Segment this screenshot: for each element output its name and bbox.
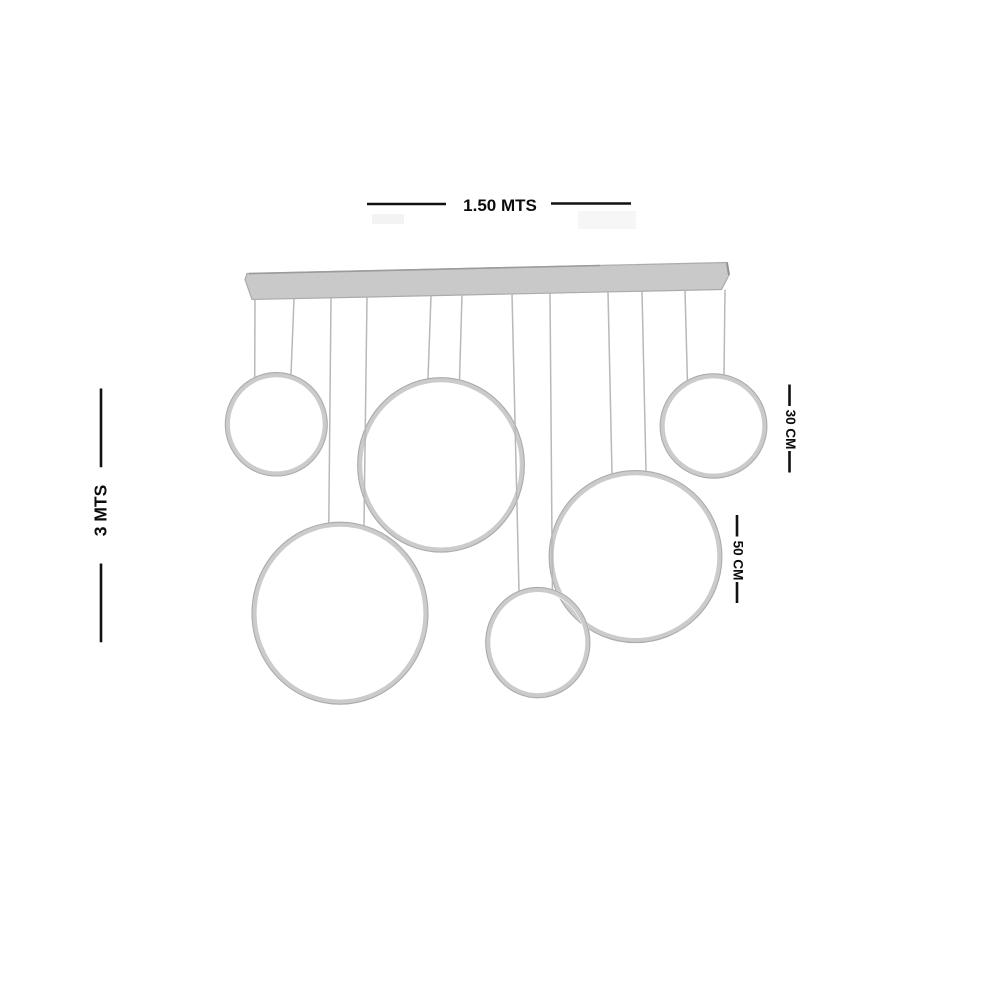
svg-text:1.50 MTS: 1.50 MTS [463, 196, 537, 215]
svg-text:50 CM: 50 CM [730, 541, 745, 581]
svg-text:30 CM: 30 CM [783, 410, 798, 450]
svg-text:3 MTS: 3 MTS [91, 485, 111, 537]
